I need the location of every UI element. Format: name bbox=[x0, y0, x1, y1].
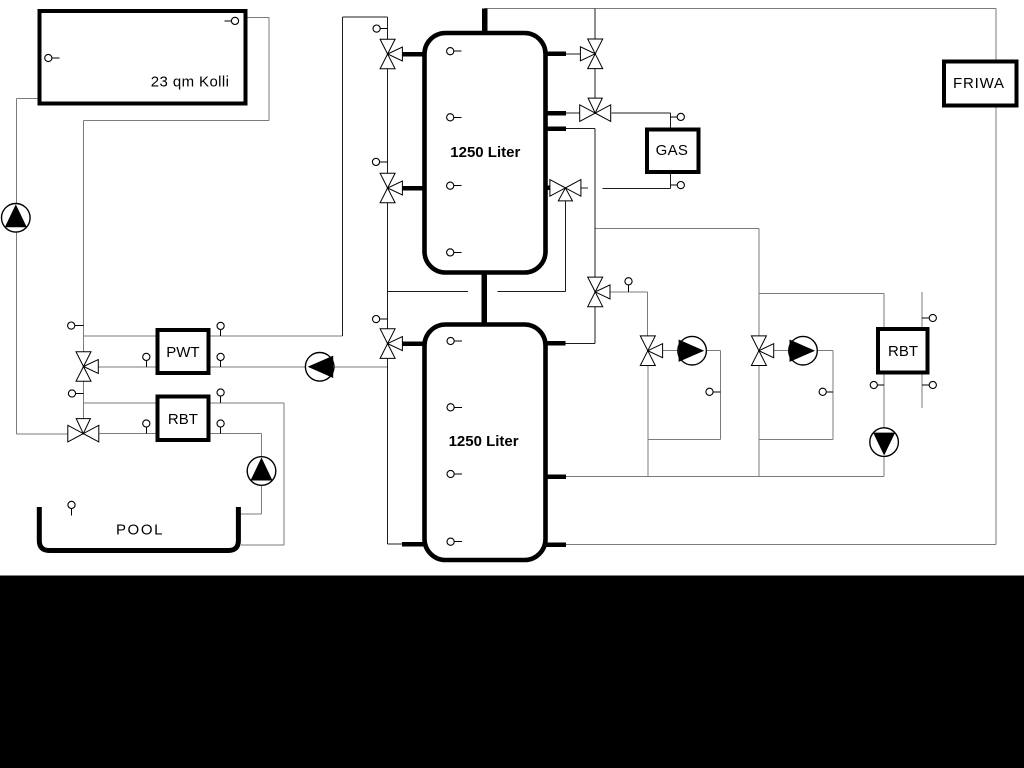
svg-text:RBT: RBT bbox=[888, 343, 918, 360]
svg-text:GAS: GAS bbox=[656, 142, 689, 159]
svg-text:23 qm Kolli: 23 qm Kolli bbox=[151, 73, 230, 90]
svg-text:RBT: RBT bbox=[168, 411, 198, 428]
svg-text:1250 Liter: 1250 Liter bbox=[450, 144, 520, 161]
svg-text:1250 Liter: 1250 Liter bbox=[449, 433, 519, 450]
svg-text:POOL: POOL bbox=[116, 522, 164, 539]
svg-text:FRIWA: FRIWA bbox=[953, 75, 1005, 92]
svg-text:PWT: PWT bbox=[166, 344, 199, 361]
